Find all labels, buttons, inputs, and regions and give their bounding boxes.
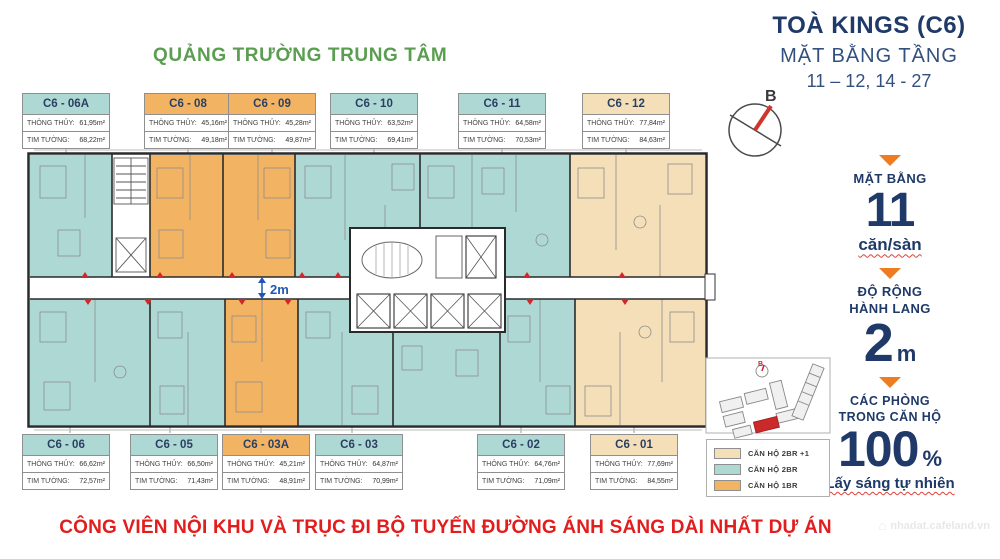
unit-id: C6 - 02 bbox=[478, 435, 564, 455]
thong-thuy-label: THÔNG THỦY: bbox=[320, 461, 368, 468]
service-core bbox=[350, 228, 505, 332]
thong-thuy-value: 61,95m² bbox=[79, 120, 105, 127]
panel-unit-label: căn/sàn bbox=[820, 235, 960, 255]
unit-card-C6-03A: C6 - 03ATHÔNG THỦY:45,21m²TIM TƯỜNG:48,9… bbox=[222, 434, 310, 490]
tim-tuong-label: TIM TƯỜNG: bbox=[135, 478, 178, 485]
tim-tuong-value: 48,91m² bbox=[279, 478, 305, 485]
thong-thuy-value: 66,50m² bbox=[187, 461, 213, 468]
clear-area-row: THÔNG THỦY:66,50m² bbox=[131, 455, 217, 472]
thong-thuy-label: THÔNG THỦY: bbox=[482, 461, 530, 468]
tim-tuong-label: TIM TƯỜNG: bbox=[335, 137, 378, 144]
thong-thuy-label: THÔNG THỦY: bbox=[463, 120, 511, 127]
unit-card-C6-08: C6 - 08THÔNG THỦY:45,16m²TIM TƯỜNG:49,18… bbox=[144, 93, 232, 149]
tim-tuong-label: TIM TƯỜNG: bbox=[27, 137, 70, 144]
wall-area-row: TIM TƯỜNG:71,09m² bbox=[478, 472, 564, 489]
unit-type-legend: CĂN HỘ 2BR +1CĂN HỘ 2BRCĂN HỘ 1BR bbox=[706, 439, 830, 497]
panel-subtitle: Lấy sáng tự nhiên bbox=[812, 475, 968, 492]
unit-card-C6-03: C6 - 03THÔNG THỦY:64,87m²TIM TƯỜNG:70,99… bbox=[315, 434, 403, 490]
tim-tuong-value: 72,57m² bbox=[79, 478, 105, 485]
thong-thuy-label: THÔNG THỦY: bbox=[335, 120, 383, 127]
thong-thuy-value: 64,87m² bbox=[372, 461, 398, 468]
unit-card-C6-05: C6 - 05THÔNG THỦY:66,50m²TIM TƯỜNG:71,43… bbox=[130, 434, 218, 490]
legend-label: CĂN HỘ 1BR bbox=[748, 481, 798, 490]
clear-area-row: THÔNG THỦY:77,69m² bbox=[591, 455, 677, 472]
wall-area-row: TIM TƯỜNG:72,57m² bbox=[23, 472, 109, 489]
legend-swatch bbox=[714, 448, 741, 459]
unit-id: C6 - 10 bbox=[331, 94, 417, 114]
tim-tuong-value: 70,53m² bbox=[515, 137, 541, 144]
panel-units-per-floor: MẶT BẰNG 11 căn/sàn bbox=[820, 155, 960, 255]
clear-area-row: THÔNG THỦY:64,76m² bbox=[478, 455, 564, 472]
thong-thuy-value: 66,62m² bbox=[79, 461, 105, 468]
clear-area-row: THÔNG THỦY:63,52m² bbox=[331, 114, 417, 131]
panel-value: 2 bbox=[864, 318, 893, 369]
tim-tuong-value: 69,41m² bbox=[387, 137, 413, 144]
unit-card-C6-06: C6 - 06THÔNG THỦY:66,62m²TIM TƯỜNG:72,57… bbox=[22, 434, 110, 490]
panel-corridor-width: ĐỘ RỘNG HÀNH LANG 2 m bbox=[820, 268, 960, 369]
panel-title-line1: CÁC PHÒNG bbox=[812, 393, 968, 409]
unit-id: C6 - 03 bbox=[316, 435, 402, 455]
unit-id: C6 - 11 bbox=[459, 94, 545, 114]
thong-thuy-value: 45,16m² bbox=[201, 120, 227, 127]
compass-icon: B bbox=[729, 88, 781, 156]
corridor-width-annotation: 2m bbox=[258, 277, 289, 299]
panel-title-line1: ĐỘ RỘNG bbox=[820, 284, 960, 301]
tim-tuong-value: 68,22m² bbox=[79, 137, 105, 144]
legend-row: CĂN HỘ 1BR bbox=[714, 477, 822, 493]
unit-id: C6 - 05 bbox=[131, 435, 217, 455]
orange-triangle-icon bbox=[879, 155, 901, 166]
tim-tuong-label: TIM TƯỜNG: bbox=[27, 478, 70, 485]
corridor-width-label: 2m bbox=[270, 282, 289, 297]
tim-tuong-value: 70,99m² bbox=[372, 478, 398, 485]
thong-thuy-value: 63,52m² bbox=[387, 120, 413, 127]
panel-value-unit: m bbox=[897, 341, 917, 367]
tim-tuong-value: 49,18m² bbox=[201, 137, 227, 144]
thong-thuy-value: 45,21m² bbox=[279, 461, 305, 468]
wall-area-row: TIM TƯỜNG:49,87m² bbox=[229, 131, 315, 148]
tim-tuong-label: TIM TƯỜNG: bbox=[320, 478, 363, 485]
tim-tuong-label: TIM TƯỜNG: bbox=[587, 137, 630, 144]
tim-tuong-value: 49,87m² bbox=[285, 137, 311, 144]
thong-thuy-value: 64,58m² bbox=[515, 120, 541, 127]
legend-label: CĂN HỘ 2BR +1 bbox=[748, 449, 809, 458]
thong-thuy-label: THÔNG THỦY: bbox=[587, 120, 635, 127]
bottom-banner: CÔNG VIÊN NỘI KHU VÀ TRỤC ĐI BỘ TUYẾN ĐƯ… bbox=[18, 517, 873, 539]
panel-value: 100 bbox=[838, 426, 918, 474]
unit-id: C6 - 08 bbox=[145, 94, 231, 114]
orange-triangle-icon bbox=[879, 377, 901, 388]
thong-thuy-label: THÔNG THỦY: bbox=[27, 461, 75, 468]
unit-id: C6 - 06A bbox=[23, 94, 109, 114]
thong-thuy-label: THÔNG THỦY: bbox=[227, 461, 275, 468]
clear-area-row: THÔNG THỦY:77,84m² bbox=[583, 114, 669, 131]
tim-tuong-label: TIM TƯỜNG: bbox=[482, 478, 525, 485]
compass-north-label: B bbox=[765, 88, 777, 105]
wall-area-row: TIM TƯỜNG:68,22m² bbox=[23, 131, 109, 148]
unit-card-C6-09: C6 - 09THÔNG THỦY:45,28m²TIM TƯỜNG:49,87… bbox=[228, 93, 316, 149]
wall-area-row: TIM TƯỜNG:48,91m² bbox=[223, 472, 309, 489]
unit-card-C6-01: C6 - 01THÔNG THỦY:77,69m²TIM TƯỜNG:84,55… bbox=[590, 434, 678, 490]
stairwell-icon bbox=[114, 158, 148, 272]
unit-card-C6-11: C6 - 11THÔNG THỦY:64,58m²TIM TƯỜNG:70,53… bbox=[458, 93, 546, 149]
legend-row: CĂN HỘ 2BR +1 bbox=[714, 445, 822, 461]
wall-area-row: TIM TƯỜNG:84,63m² bbox=[583, 131, 669, 148]
tim-tuong-label: TIM TƯỜNG: bbox=[595, 478, 638, 485]
thong-thuy-label: THÔNG THỦY: bbox=[233, 120, 281, 127]
clear-area-row: THÔNG THỦY:66,62m² bbox=[23, 455, 109, 472]
thong-thuy-label: THÔNG THỦY: bbox=[149, 120, 197, 127]
unit-id: C6 - 09 bbox=[229, 94, 315, 114]
clear-area-row: THÔNG THỦY:45,16m² bbox=[145, 114, 231, 131]
thong-thuy-label: THÔNG THỦY: bbox=[135, 461, 183, 468]
unit-id: C6 - 03A bbox=[223, 435, 309, 455]
tim-tuong-label: TIM TƯỜNG: bbox=[463, 137, 506, 144]
legend-row: CĂN HỘ 2BR bbox=[714, 461, 822, 477]
clear-area-row: THÔNG THỦY:64,87m² bbox=[316, 455, 402, 472]
unit-id: C6 - 12 bbox=[583, 94, 669, 114]
wall-area-row: TIM TƯỜNG:69,41m² bbox=[331, 131, 417, 148]
thong-thuy-value: 64,76m² bbox=[534, 461, 560, 468]
legend-swatch bbox=[714, 480, 741, 491]
clear-area-row: THÔNG THỦY:45,21m² bbox=[223, 455, 309, 472]
house-icon: ⌂ bbox=[879, 518, 887, 533]
thong-thuy-label: THÔNG THỦY: bbox=[27, 120, 75, 127]
wall-area-row: TIM TƯỜNG:70,99m² bbox=[316, 472, 402, 489]
tim-tuong-value: 84,55m² bbox=[647, 478, 673, 485]
watermark: ⌂ nhadat.cafeland.vn bbox=[879, 518, 991, 533]
wall-area-row: TIM TƯỜNG:84,55m² bbox=[591, 472, 677, 489]
tim-tuong-value: 84,63m² bbox=[639, 137, 665, 144]
clear-area-row: THÔNG THỦY:64,58m² bbox=[459, 114, 545, 131]
tim-tuong-label: TIM TƯỜNG: bbox=[233, 137, 276, 144]
panel-value: 11 bbox=[820, 188, 960, 234]
legend-label: CĂN HỘ 2BR bbox=[748, 465, 798, 474]
clear-area-row: THÔNG THỦY:45,28m² bbox=[229, 114, 315, 131]
inset-compass-label: B bbox=[758, 361, 763, 368]
floorplan-page: QUẢNG TRƯỜNG TRUNG TÂM TOÀ KINGS (C6) MẶ… bbox=[0, 0, 1000, 559]
wall-area-row: TIM TƯỜNG:49,18m² bbox=[145, 131, 231, 148]
corridor-right-tab bbox=[705, 274, 715, 300]
thong-thuy-value: 45,28m² bbox=[285, 120, 311, 127]
unit-card-C6-06A: C6 - 06ATHÔNG THỦY:61,95m²TIM TƯỜNG:68,2… bbox=[22, 93, 110, 149]
unit-card-C6-10: C6 - 10THÔNG THỦY:63,52m²TIM TƯỜNG:69,41… bbox=[330, 93, 418, 149]
thong-thuy-label: THÔNG THỦY: bbox=[595, 461, 643, 468]
clear-area-row: THÔNG THỦY:61,95m² bbox=[23, 114, 109, 131]
unit-id: C6 - 01 bbox=[591, 435, 677, 455]
unit-card-C6-02: C6 - 02THÔNG THỦY:64,76m²TIM TƯỜNG:71,09… bbox=[477, 434, 565, 490]
legend-swatch bbox=[714, 464, 741, 475]
panel-natural-light: CÁC PHÒNG TRONG CĂN HỘ 100 % Lấy sáng tự… bbox=[812, 377, 968, 492]
orange-triangle-icon bbox=[879, 268, 901, 279]
tim-tuong-value: 71,43m² bbox=[187, 478, 213, 485]
unit-card-C6-12: C6 - 12THÔNG THỦY:77,84m²TIM TƯỜNG:84,63… bbox=[582, 93, 670, 149]
watermark-text: nhadat.cafeland.vn bbox=[890, 520, 990, 532]
tim-tuong-label: TIM TƯỜNG: bbox=[227, 478, 270, 485]
thong-thuy-value: 77,84m² bbox=[639, 120, 665, 127]
wall-area-row: TIM TƯỜNG:71,43m² bbox=[131, 472, 217, 489]
tim-tuong-value: 71,09m² bbox=[534, 478, 560, 485]
panel-value-unit: % bbox=[922, 446, 942, 472]
unit-id: C6 - 06 bbox=[23, 435, 109, 455]
tim-tuong-label: TIM TƯỜNG: bbox=[149, 137, 192, 144]
wall-area-row: TIM TƯỜNG:70,53m² bbox=[459, 131, 545, 148]
thong-thuy-value: 77,69m² bbox=[647, 461, 673, 468]
